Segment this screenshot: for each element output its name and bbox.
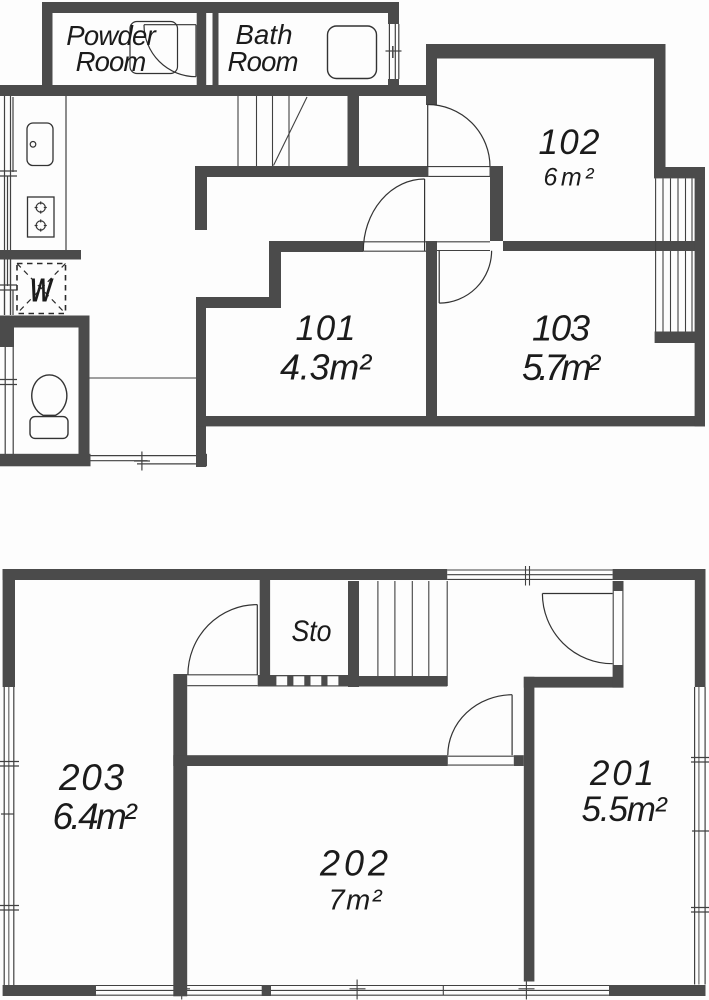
svg-text:102: 102 (539, 123, 600, 162)
svg-text:Room: Room (228, 46, 299, 77)
svg-text:W: W (30, 272, 54, 309)
svg-text:6m²: 6m² (544, 164, 596, 192)
svg-text:103: 103 (532, 308, 590, 349)
svg-text:Room: Room (76, 46, 147, 77)
svg-text:5.5m²: 5.5m² (582, 790, 668, 829)
svg-text:6.4m²: 6.4m² (53, 796, 139, 837)
svg-text:7m²: 7m² (329, 885, 383, 917)
svg-text:201: 201 (589, 754, 654, 793)
svg-text:202: 202 (319, 843, 388, 884)
svg-text:101: 101 (296, 309, 356, 348)
svg-text:5.7m²: 5.7m² (522, 347, 602, 388)
svg-text:203: 203 (58, 757, 124, 798)
svg-text:4.3m²: 4.3m² (280, 347, 373, 388)
svg-text:Sto: Sto (292, 615, 332, 648)
